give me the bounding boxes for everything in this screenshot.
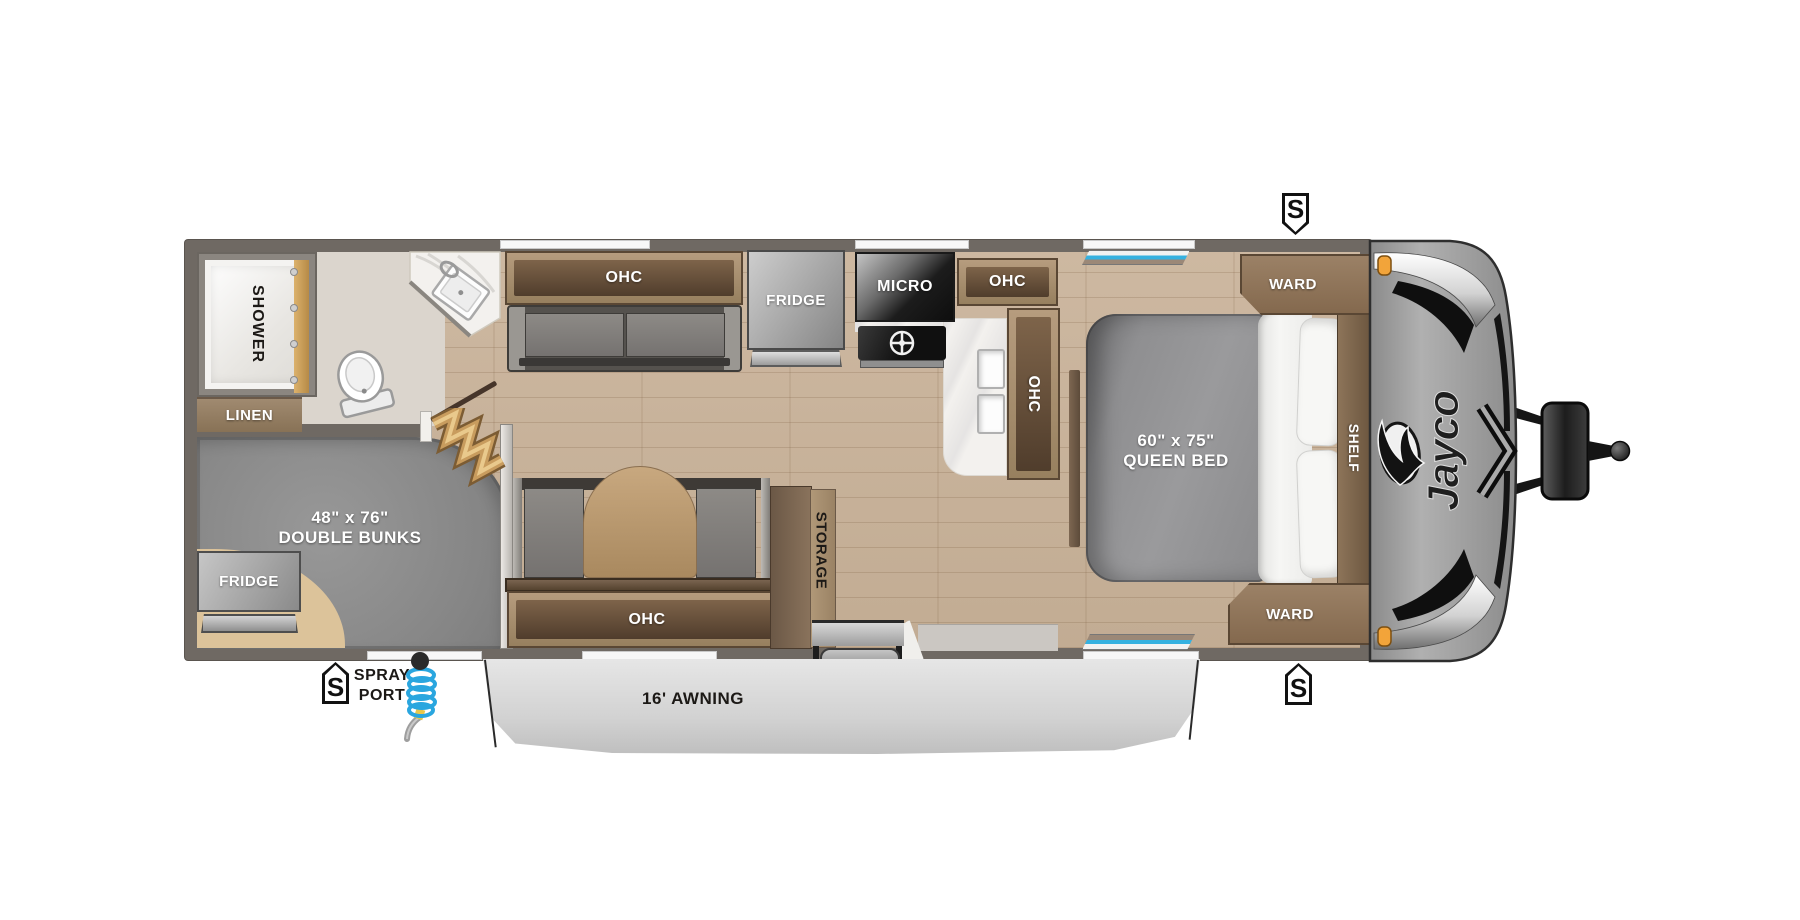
dinette-base bbox=[505, 578, 787, 592]
speaker-top-letter: S bbox=[1282, 193, 1309, 235]
sofa-ohc: OHC bbox=[505, 251, 743, 305]
shower-hinge-3 bbox=[290, 340, 298, 348]
window-top-bedroom bbox=[1083, 240, 1195, 249]
speaker-top-badge: S bbox=[1282, 193, 1309, 235]
cooktop-fan-icon bbox=[888, 329, 916, 357]
bedroom-divider bbox=[1069, 370, 1080, 547]
window-bottom-bedroom bbox=[1083, 651, 1199, 660]
sofa-front-rail bbox=[519, 358, 730, 366]
sofa bbox=[507, 305, 742, 372]
dinette-arm-left bbox=[513, 478, 522, 582]
accordion-door-icon bbox=[426, 408, 508, 496]
ward-bottom-label: WARD bbox=[1266, 606, 1334, 623]
ward-top: WARD bbox=[1240, 254, 1372, 315]
shower-label: SHOWER bbox=[248, 264, 266, 384]
linen-cabinet: LINEN bbox=[197, 397, 302, 432]
ward-top-label: WARD bbox=[1269, 276, 1343, 293]
entry-landing bbox=[918, 624, 1058, 651]
shower-hinge-2 bbox=[290, 304, 298, 312]
toilet-icon bbox=[325, 347, 403, 425]
storage-label: STORAGE bbox=[813, 496, 830, 606]
kitchen-ohc-side-label: OHC bbox=[1024, 354, 1042, 434]
awning-label: 16' AWNING bbox=[593, 689, 793, 709]
queen-bed-label: 60" x 75" QUEEN BED bbox=[1086, 431, 1266, 472]
double-bunks-size: 48" x 76" bbox=[250, 508, 450, 528]
dinette-cushion-left bbox=[524, 488, 584, 578]
window-bottom-dinette bbox=[582, 651, 717, 660]
kitchen-fridge-label: FRIDGE bbox=[766, 292, 826, 309]
kitchen-sink-basin-top bbox=[977, 349, 1005, 389]
corner-sink bbox=[408, 250, 504, 338]
awning bbox=[483, 659, 1200, 754]
sofa-cushion-right bbox=[626, 313, 725, 357]
kitchen-ohc-upper-label: OHC bbox=[989, 273, 1026, 291]
sofa-cushion-left bbox=[525, 313, 624, 357]
bedroom-window-top-glass bbox=[1082, 250, 1190, 265]
jayco-logo-text: Jayco bbox=[1419, 391, 1468, 511]
dinette-arm-right bbox=[761, 478, 770, 582]
bunk-fridge: FRIDGE bbox=[197, 551, 301, 612]
dinette-table bbox=[583, 466, 697, 578]
kitchen-fridge-vent bbox=[750, 350, 842, 367]
shower-hinge-1 bbox=[290, 268, 298, 276]
window-top-living bbox=[500, 240, 650, 249]
bedroom-window-bottom-glass bbox=[1082, 634, 1195, 650]
linen-label: LINEN bbox=[226, 407, 274, 424]
bunk-fridge-tray bbox=[201, 614, 298, 633]
dinette-ohc: OHC bbox=[507, 591, 787, 648]
queen-bed-size: 60" x 75" bbox=[1086, 431, 1266, 451]
spray-hose-icon bbox=[402, 651, 448, 747]
floorplan-canvas: FRIDGE 48" x 76" DOUBLE BUNKS SHOWER LIN… bbox=[0, 0, 1800, 920]
front-cap-and-hitch: Jayco bbox=[1368, 239, 1658, 663]
kitchen-sink-basin-bottom bbox=[977, 394, 1005, 434]
speaker-bottom-letter: S bbox=[1285, 663, 1312, 705]
double-bunks-name: DOUBLE BUNKS bbox=[250, 528, 450, 548]
window-top-kitchen bbox=[855, 240, 969, 249]
kitchen-fridge: FRIDGE bbox=[747, 250, 845, 350]
microwave-label: MICRO bbox=[877, 278, 933, 296]
dinette-ohc-label: OHC bbox=[628, 611, 665, 629]
ward-bottom: WARD bbox=[1228, 583, 1372, 645]
sofa-ohc-label: OHC bbox=[605, 269, 642, 287]
shelf-label: SHELF bbox=[1346, 403, 1362, 493]
shower-hinge-4 bbox=[290, 376, 298, 384]
microwave: MICRO bbox=[855, 252, 955, 322]
spray-port-badge-letter: S bbox=[322, 662, 349, 704]
dinette-cushion-right bbox=[696, 488, 756, 578]
cooktop-drawer bbox=[860, 360, 944, 368]
spray-port-badge: S bbox=[322, 662, 349, 704]
speaker-bottom-badge: S bbox=[1285, 663, 1312, 705]
bunk-fridge-label: FRIDGE bbox=[219, 573, 279, 590]
double-bunks-label: 48" x 76" DOUBLE BUNKS bbox=[250, 508, 450, 549]
entry-step-platform bbox=[812, 620, 904, 646]
shower-door bbox=[294, 260, 309, 393]
queen-bed-name: QUEEN BED bbox=[1086, 451, 1266, 471]
storage-cabinet bbox=[770, 486, 812, 649]
kitchen-ohc-upper: OHC bbox=[957, 258, 1058, 306]
